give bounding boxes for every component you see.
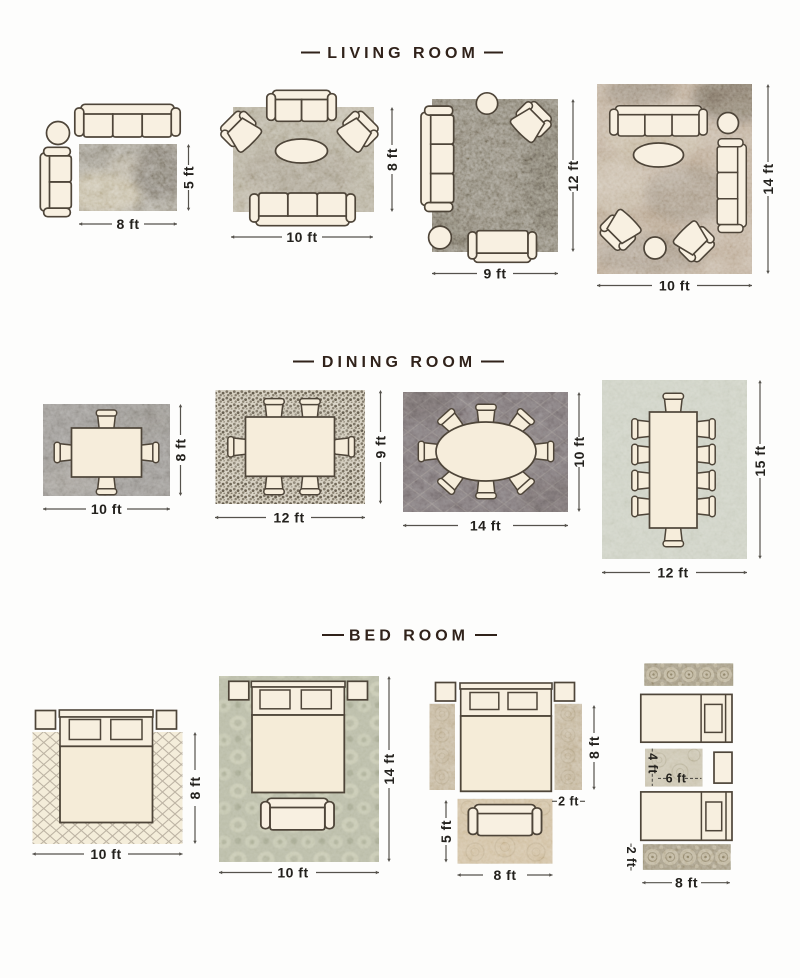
svg-text:LIVING ROOM: LIVING ROOM xyxy=(327,45,479,62)
svg-text:8 ft: 8 ft xyxy=(675,875,698,891)
svg-text:14 ft: 14 ft xyxy=(760,163,776,194)
svg-text:10 ft: 10 ft xyxy=(659,278,690,294)
svg-text:12 ft: 12 ft xyxy=(273,510,304,526)
svg-text:8 ft: 8 ft xyxy=(586,736,602,759)
svg-text:15 ft: 15 ft xyxy=(752,445,768,476)
svg-text:14 ft: 14 ft xyxy=(470,518,501,534)
svg-text:8 ft: 8 ft xyxy=(187,777,203,800)
svg-text:10 ft: 10 ft xyxy=(90,846,121,862)
svg-text:8 ft: 8 ft xyxy=(173,439,189,462)
svg-text:8 ft: 8 ft xyxy=(384,148,400,171)
svg-text:8 ft: 8 ft xyxy=(494,867,517,883)
svg-text:4 ft: 4 ft xyxy=(645,753,659,774)
svg-text:5 ft: 5 ft xyxy=(181,166,197,189)
svg-text:10 ft: 10 ft xyxy=(571,436,587,467)
svg-text:12 ft: 12 ft xyxy=(657,565,688,581)
svg-text:12 ft: 12 ft xyxy=(565,160,581,191)
svg-text:5 ft: 5 ft xyxy=(438,820,454,843)
svg-text:BED ROOM: BED ROOM xyxy=(349,628,469,645)
svg-text:10 ft: 10 ft xyxy=(91,501,122,517)
svg-text:10 ft: 10 ft xyxy=(277,865,308,881)
svg-text:14 ft: 14 ft xyxy=(381,753,397,784)
svg-text:2 ft: 2 ft xyxy=(558,794,579,808)
svg-text:10 ft: 10 ft xyxy=(286,229,317,245)
svg-text:DINING ROOM: DINING ROOM xyxy=(322,354,476,371)
svg-text:9 ft: 9 ft xyxy=(484,266,507,282)
svg-text:6 ft: 6 ft xyxy=(666,771,687,785)
svg-text:9 ft: 9 ft xyxy=(373,436,389,459)
svg-text:2 ft: 2 ft xyxy=(624,847,638,868)
svg-text:8 ft: 8 ft xyxy=(117,216,140,232)
